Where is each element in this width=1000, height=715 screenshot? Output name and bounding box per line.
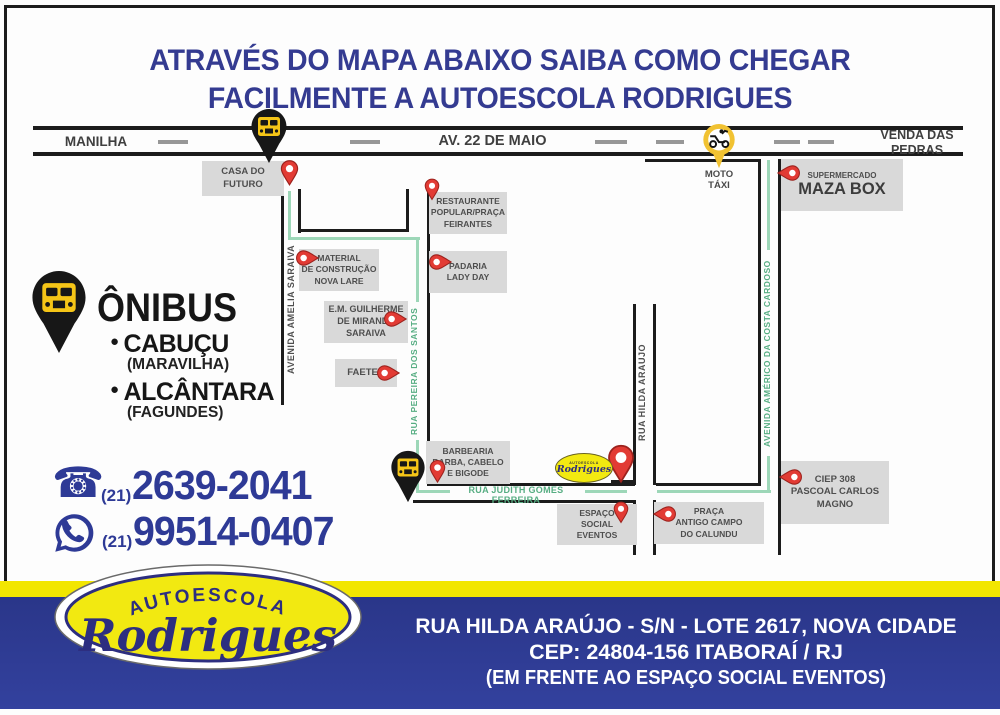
route-segment	[657, 490, 771, 493]
moto-taxi-pin	[700, 123, 738, 172]
legend-item-alcantara: ● ALCÂNTARA	[110, 378, 274, 407]
street-line-hilda-right-upper	[653, 304, 656, 485]
map-pin-ciep	[779, 469, 803, 486]
frame-top	[4, 5, 995, 8]
road-label-manilha: MANILHA	[58, 134, 134, 149]
road-dash	[158, 140, 188, 144]
street-line-judith-top-right	[656, 483, 761, 486]
map-pin-barbearia	[429, 459, 446, 484]
street-line-amelia	[281, 189, 284, 405]
road-dash	[350, 140, 380, 144]
phone-number: 2639-2041	[132, 464, 312, 506]
route-segment	[767, 160, 770, 250]
maza-title: MAZA BOX	[798, 180, 885, 198]
bus-stop-pin-bottom	[389, 448, 427, 505]
page-title: ATRAVÉS DO MAPA ABAIXO SAIBA COMO CHEGAR…	[0, 42, 1000, 118]
street-name-pereira: RUA PEREIRA DOS SANTOS	[409, 302, 419, 440]
footer-logo-name: Rodrigues	[77, 609, 337, 662]
map-pin-faetec	[377, 365, 401, 382]
road-dash	[774, 140, 800, 144]
block-line-right	[406, 189, 409, 232]
legend-item-cabucu: ● CABUÇU	[110, 330, 229, 359]
legend-item-alcantara-sub: (FAGUNDES)	[127, 404, 223, 422]
legend-item-name: CABUÇU	[124, 330, 229, 358]
whatsapp-number: 99514-0407	[133, 510, 334, 552]
footer-address-line-3: (EM FRENTE AO ESPAÇO SOCIAL EVENTOS)	[411, 666, 962, 690]
phone-area-code: (21)	[101, 486, 131, 506]
block-line-left	[298, 189, 301, 233]
map-pin-material	[296, 250, 320, 267]
map-pin-espaco	[613, 501, 629, 524]
phone-icon: ☎	[52, 462, 104, 504]
mini-logo-name: Rodrigues	[557, 465, 611, 475]
footer-address-line-1: RUA HILDA ARAÚJO - S/N - LOTE 2617, NOVA…	[389, 614, 983, 639]
main-road-top-edge	[33, 126, 963, 130]
moto-taxi-label: MOTO TÁXI	[690, 169, 748, 191]
map-mini-logo: AUTOESCOLA Rodrigues	[555, 453, 613, 483]
road-label-av-22-de-maio: AV. 22 DE MAIO	[425, 133, 560, 149]
main-road-bottom-edge	[33, 152, 963, 156]
flyer: ATRAVÉS DO MAPA ABAIXO SAIBA COMO CHEGAR…	[0, 0, 1000, 715]
whatsapp-area-code: (21)	[102, 532, 132, 552]
footer-address-line-2: CEP: 24804-156 ITABORAÍ / RJ	[380, 640, 992, 665]
street-name-americo: AVENIDA AMÉRICO DA COSTA CARDOSO	[762, 250, 772, 458]
bus-stop-pin-top	[249, 106, 289, 166]
map-pin-restaurante	[424, 178, 440, 201]
whatsapp-icon	[52, 511, 96, 555]
road-label-venda-das-pedras: VENDA DAS PEDRAS	[874, 128, 960, 157]
route-segment	[288, 237, 420, 240]
legend-item-cabucu-sub: (MARAVILHA)	[127, 356, 229, 374]
bullet-icon: ●	[110, 333, 119, 350]
map-pin-praca	[653, 506, 677, 523]
road-dash	[656, 140, 684, 144]
map-pin-maza	[777, 165, 801, 182]
block-line-bottom	[298, 229, 409, 232]
route-segment	[585, 490, 627, 493]
street-name-hilda: RUA HILDA ARAUJO	[637, 328, 647, 458]
bullet-icon: ●	[110, 381, 119, 398]
title-line-2: FACILMENTE A AUTOESCOLA RODRIGUES	[25, 80, 975, 118]
location-box-casa-do-futuro: CASA DO FUTURO	[202, 161, 284, 196]
street-line-americo-left	[758, 159, 761, 486]
route-segment	[416, 240, 419, 302]
legend-title: ÔNIBUS	[97, 286, 237, 331]
route-segment	[767, 456, 770, 492]
title-line-1: ATRAVÉS DO MAPA ABAIXO SAIBA COMO CHEGAR	[25, 42, 975, 80]
street-name-judith: RUA JUDITH GOMES FERREIRA	[448, 485, 584, 505]
legend-item-name: ALCÂNTARA	[124, 378, 275, 406]
road-dash	[595, 140, 627, 144]
footer-logo: AUTOESCOLA Rodrigues	[52, 563, 364, 671]
maza-subtitle: SUPERMERCADO	[808, 172, 877, 181]
map-pin-padaria	[429, 254, 453, 271]
street-name-amelia: AVENIDA AMELIA SARAIVA	[286, 212, 296, 407]
location-box-restaurante: RESTAURANTE POPULAR/PRAÇA FEIRANTES	[429, 192, 507, 234]
road-dash	[808, 140, 834, 144]
legend-bus-pin	[27, 268, 91, 356]
map-pin-escola	[384, 311, 408, 328]
